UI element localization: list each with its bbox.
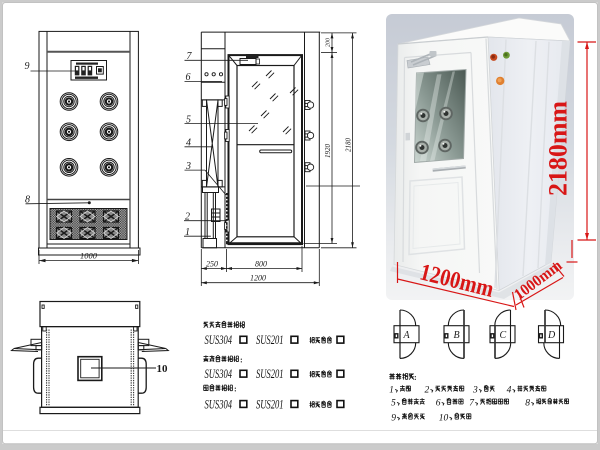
svg-text:4: 4 — [507, 386, 512, 396]
svg-text:6: 6 — [436, 399, 441, 409]
svg-text:9: 9 — [391, 413, 396, 423]
svg-text:10: 10 — [157, 363, 169, 375]
svg-text:3: 3 — [472, 386, 478, 396]
svg-text::: : — [242, 321, 245, 330]
svg-text:SUS304: SUS304 — [205, 367, 233, 381]
svg-text:2180: 2180 — [345, 138, 353, 153]
svg-text:2: 2 — [425, 386, 430, 396]
svg-text:A: A — [403, 330, 411, 341]
svg-text:1920: 1920 — [324, 144, 332, 159]
svg-text:800: 800 — [255, 260, 267, 269]
svg-text:9: 9 — [25, 61, 30, 72]
svg-text:10: 10 — [439, 413, 449, 423]
svg-text:C: C — [500, 330, 507, 341]
svg-text:SUS201: SUS201 — [256, 333, 284, 347]
svg-text:200: 200 — [326, 38, 332, 47]
svg-text::: : — [240, 356, 243, 365]
svg-text:2180mm: 2180mm — [544, 101, 573, 196]
svg-text:SUS304: SUS304 — [205, 397, 233, 411]
svg-text:1: 1 — [389, 386, 394, 396]
svg-text:SUS304: SUS304 — [205, 333, 233, 347]
svg-text:5: 5 — [391, 399, 396, 409]
svg-text:SUS201: SUS201 — [256, 397, 284, 411]
svg-text:1000: 1000 — [80, 251, 98, 261]
svg-text:1200: 1200 — [250, 274, 266, 283]
svg-text::: : — [234, 385, 237, 394]
svg-text:D: D — [547, 330, 556, 341]
svg-text:250: 250 — [206, 260, 218, 269]
svg-text:B: B — [454, 330, 460, 341]
svg-text:SUS201: SUS201 — [256, 367, 284, 381]
svg-text:8: 8 — [525, 399, 530, 409]
svg-text::: : — [414, 373, 417, 382]
